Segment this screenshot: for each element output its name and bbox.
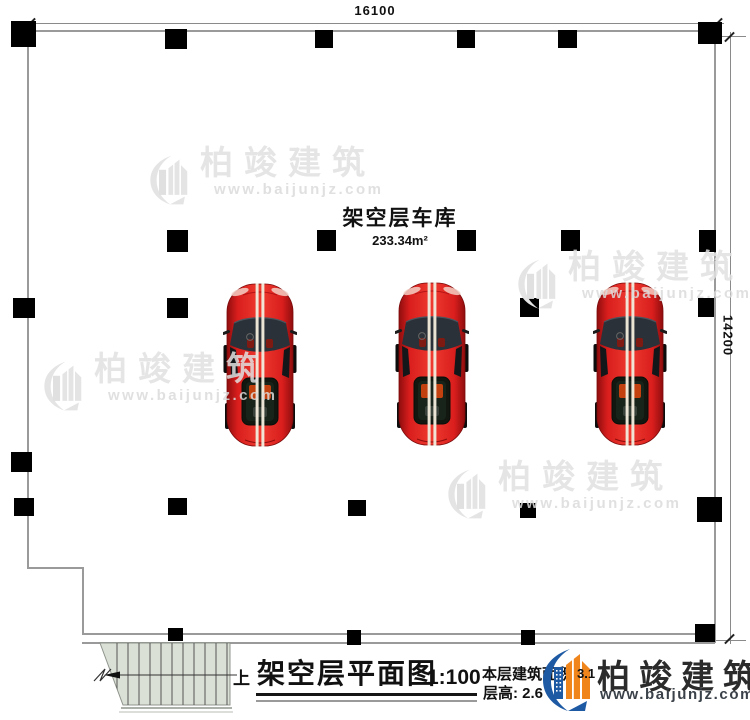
- wall-step-vertical: [82, 567, 84, 634]
- structural-column: [520, 298, 539, 317]
- brand-url: www.baijunjz.com: [600, 686, 750, 703]
- floor-height-label: 层高: 2.6: [483, 682, 543, 703]
- structural-column: [13, 298, 35, 318]
- title-underline-thin: [256, 700, 477, 702]
- extension-stub-bottom-right: [716, 640, 746, 641]
- structural-column: [347, 630, 361, 645]
- car-windshield: [600, 317, 660, 351]
- structural-column: [558, 30, 577, 48]
- room-label: 架空层车库 233.34m²: [300, 202, 500, 248]
- watermark-logo-icon: [42, 358, 86, 414]
- wall-top: [27, 30, 715, 32]
- car-top-view: [395, 280, 469, 448]
- stair-up-label: 上: [233, 664, 250, 689]
- wall-step-horizontal: [27, 567, 83, 569]
- watermark-url-text: www.baijunjz.com: [214, 181, 383, 198]
- wall-right: [714, 30, 716, 643]
- structural-column: [168, 498, 187, 515]
- watermark-url-text: www.baijunjz.com: [512, 495, 681, 512]
- title-underline-thick: [256, 693, 477, 696]
- structural-column: [521, 630, 535, 645]
- watermark: 柏竣建筑 www.baijunjz.com: [148, 146, 383, 208]
- structural-column: [165, 29, 187, 49]
- dimension-line-top: [24, 23, 724, 24]
- watermark: 柏竣建筑 www.baijunjz.com: [446, 460, 681, 522]
- watermark-brand-text: 柏竣建筑: [498, 460, 681, 495]
- structural-column: [695, 624, 715, 642]
- structural-column: [168, 628, 183, 641]
- dimension-value-top: 16100: [340, 3, 410, 18]
- structural-column: [11, 452, 32, 472]
- structural-column: [520, 503, 536, 518]
- watermark-logo-icon: [446, 466, 490, 522]
- structural-column: [699, 230, 716, 252]
- watermark-brand-text: 柏竣建筑: [200, 146, 383, 181]
- car-top-view: [223, 281, 297, 449]
- floor-area-value-fragment: 3.1: [577, 666, 595, 681]
- drawing-scale: 1:100: [427, 666, 481, 690]
- structural-column: [14, 498, 34, 516]
- room-area: 233.34m²: [300, 233, 500, 248]
- watermark-logo-icon: [148, 152, 192, 208]
- car-windshield: [402, 317, 462, 351]
- structural-column: [697, 497, 722, 522]
- room-name: 架空层车库: [300, 202, 500, 232]
- structural-column: [561, 230, 580, 251]
- floor-plan: 16100 14200 架空层车库 233.34m² 上 架空层平面图 1:10…: [0, 0, 750, 720]
- structural-column: [457, 30, 475, 48]
- car-windshield: [230, 318, 290, 352]
- structural-column: [315, 30, 333, 48]
- structural-column: [698, 22, 722, 44]
- structural-column: [167, 298, 188, 318]
- drawing-title: 架空层平面图: [257, 652, 437, 692]
- structural-column: [11, 21, 36, 47]
- structural-column: [698, 298, 714, 317]
- dimension-value-right: 14200: [721, 301, 736, 371]
- structural-column: [167, 230, 188, 252]
- structural-column: [348, 500, 366, 516]
- car-top-view: [593, 280, 667, 448]
